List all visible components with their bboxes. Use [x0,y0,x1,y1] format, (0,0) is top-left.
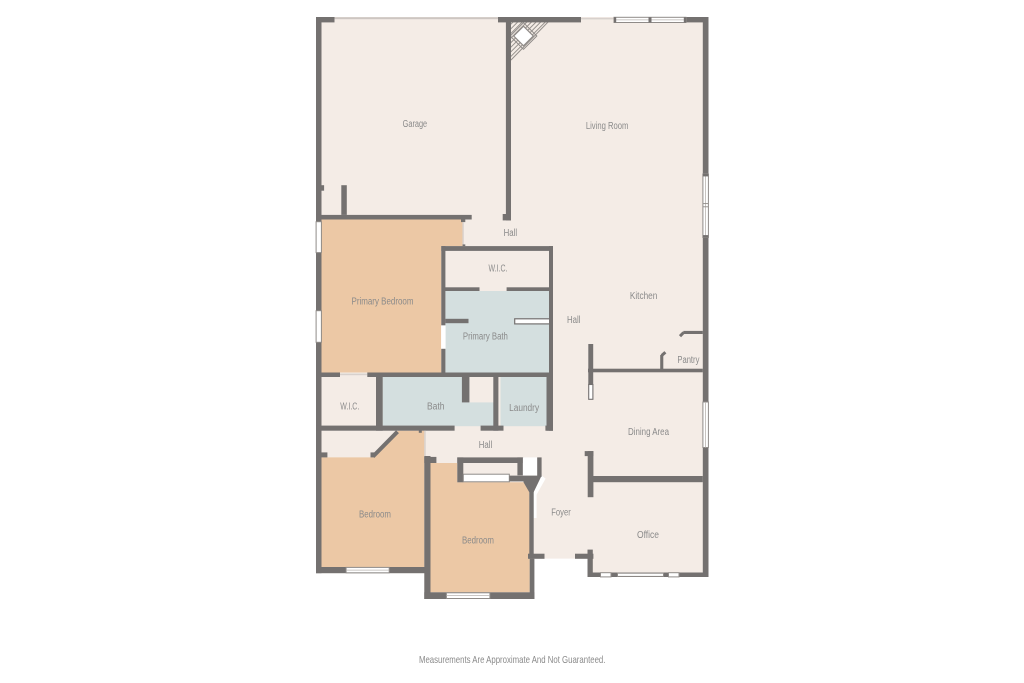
svg-text:Laundry: Laundry [509,403,539,414]
svg-text:Hall: Hall [504,228,518,239]
svg-text:Primary Bath: Primary Bath [463,332,508,343]
svg-text:Garage: Garage [403,119,428,130]
svg-text:Primary Bedroom: Primary Bedroom [352,297,414,308]
svg-text:Bedroom: Bedroom [359,509,391,520]
svg-text:Hall: Hall [479,440,493,451]
svg-text:Bedroom: Bedroom [462,535,494,546]
svg-text:Dining Area: Dining Area [628,427,669,438]
svg-text:Measurements Are Approximate A: Measurements Are Approximate And Not Gua… [419,654,606,666]
svg-text:Office: Office [637,530,659,541]
svg-text:Pantry: Pantry [677,355,699,366]
svg-text:Kitchen: Kitchen [630,291,658,302]
svg-text:Bath: Bath [427,402,445,413]
svg-text:Foyer: Foyer [551,507,571,518]
svg-text:Hall: Hall [567,315,581,326]
svg-text:Living Room: Living Room [586,121,629,132]
svg-text:W.I.C.: W.I.C. [489,264,508,275]
svg-text:W.I.C.: W.I.C. [340,402,359,413]
